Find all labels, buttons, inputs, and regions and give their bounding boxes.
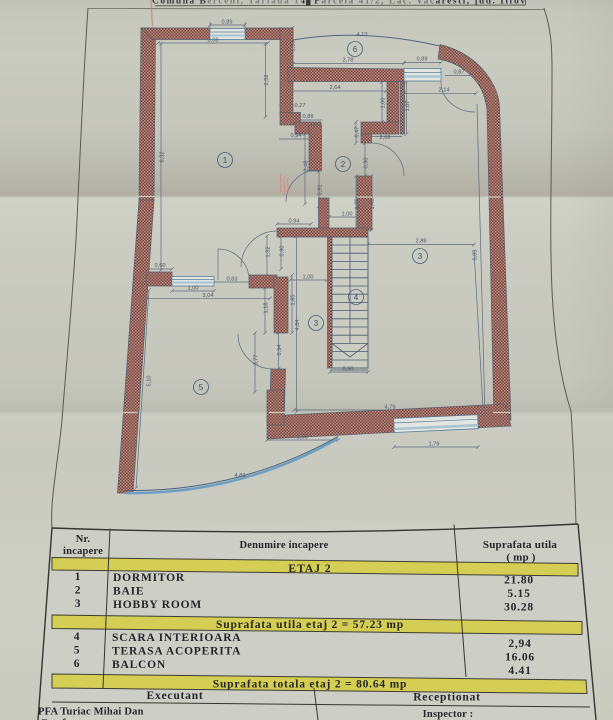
- svg-text:2,78: 2,78: [343, 58, 354, 64]
- svg-text:3,04: 3,04: [203, 293, 214, 299]
- svg-text:1,32: 1,32: [266, 247, 272, 258]
- svg-text:Receptionat: Receptionat: [413, 692, 481, 704]
- svg-text:6: 6: [353, 45, 358, 54]
- svg-text:2,69: 2,69: [380, 135, 391, 141]
- svg-text:1,00: 1,00: [188, 286, 199, 292]
- svg-text:Suprafata utila: Suprafata utila: [483, 539, 558, 551]
- svg-text:Denumire incapere: Denumire incapere: [239, 540, 328, 551]
- svg-text:2,88: 2,88: [416, 239, 427, 245]
- svg-text:0,94: 0,94: [289, 219, 300, 225]
- svg-text:5: 5: [199, 383, 204, 392]
- svg-text:Executant: Executant: [146, 690, 203, 702]
- svg-text:0,87: 0,87: [454, 70, 465, 76]
- svg-text:5.15: 5.15: [507, 588, 530, 600]
- svg-text:BALCON: BALCON: [112, 659, 166, 671]
- svg-text:SCARA INTERIOARA: SCARA INTERIOARA: [112, 632, 241, 644]
- svg-text:21.80: 21.80: [504, 575, 534, 587]
- svg-text:Suprafata utila etaj 2 = 57.23: Suprafata utila etaj 2 = 57.23 mp: [216, 619, 404, 631]
- svg-text:4: 4: [74, 631, 81, 643]
- svg-text:1: 1: [223, 156, 228, 165]
- svg-text:1,00: 1,00: [381, 98, 387, 109]
- svg-text:3,08: 3,08: [208, 38, 219, 44]
- svg-text:HOBBY ROOM: HOBBY ROOM: [113, 599, 202, 611]
- svg-text:0,94: 0,94: [277, 345, 283, 356]
- svg-text:6: 6: [74, 658, 81, 670]
- svg-text:1,18: 1,18: [264, 303, 270, 314]
- svg-text:BAIE: BAIE: [113, 586, 144, 598]
- svg-text:5,85: 5,85: [473, 250, 479, 261]
- svg-text:0,94: 0,94: [291, 133, 302, 139]
- svg-text:2: 2: [341, 160, 346, 169]
- svg-text:1,00: 1,00: [303, 275, 314, 281]
- svg-text:2,94: 2,94: [508, 638, 531, 650]
- svg-text:0,91: 0,91: [318, 185, 324, 196]
- svg-text:1,79: 1,79: [429, 442, 440, 448]
- svg-text:1,41: 1,41: [370, 199, 376, 210]
- svg-text:2,14: 2,14: [439, 87, 450, 93]
- svg-text:3,77: 3,77: [254, 355, 260, 366]
- svg-text:1,07: 1,07: [405, 101, 411, 112]
- svg-text:3: 3: [418, 252, 423, 261]
- svg-text:PFA Turiac Mihai Dan: PFA Turiac Mihai Dan: [38, 707, 144, 718]
- svg-text:0,89: 0,89: [222, 20, 233, 26]
- svg-text:0,60: 0,60: [155, 263, 166, 269]
- svg-text:0,83: 0,83: [227, 277, 238, 283]
- svg-text:DORMITOR: DORMITOR: [113, 572, 185, 584]
- svg-text:3: 3: [314, 319, 319, 328]
- svg-text:0,88: 0,88: [303, 114, 314, 120]
- svg-text:4,84: 4,84: [295, 320, 301, 331]
- svg-text:Nr.: Nr.: [76, 534, 91, 545]
- svg-text:Suprafata totala etaj 2 = 80.6: Suprafata totala etaj 2 = 80.64 mp: [213, 679, 407, 691]
- svg-text:0,90: 0,90: [343, 367, 354, 373]
- svg-text:TERASA ACOPERITA: TERASA ACOPERITA: [112, 646, 241, 658]
- svg-text:6,32: 6,32: [160, 152, 166, 163]
- svg-text:1,00: 1,00: [342, 212, 353, 218]
- svg-text:4.41: 4.41: [508, 665, 531, 677]
- svg-text:Inspector :: Inspector :: [423, 709, 474, 720]
- svg-text:4: 4: [354, 293, 359, 302]
- svg-text:0,27: 0,27: [295, 103, 306, 109]
- svg-text:ETAJ 2: ETAJ 2: [288, 563, 331, 575]
- svg-text:1,13: 1,13: [291, 41, 297, 52]
- svg-text:3: 3: [75, 598, 82, 610]
- svg-text:( mp ): ( mp ): [506, 552, 535, 564]
- svg-text:2: 2: [75, 585, 82, 597]
- svg-text:2,52: 2,52: [264, 75, 270, 86]
- svg-text:2,48: 2,48: [304, 161, 310, 172]
- svg-text:0,90: 0,90: [280, 246, 286, 257]
- svg-text:1: 1: [75, 571, 82, 583]
- svg-text:0,90: 0,90: [364, 158, 370, 169]
- svg-text:5,10: 5,10: [147, 376, 153, 387]
- svg-text:0,89: 0,89: [417, 57, 428, 63]
- svg-text:1,35: 1,35: [355, 199, 361, 210]
- svg-text:4,13: 4,13: [357, 32, 368, 38]
- svg-text:4,89: 4,89: [235, 473, 246, 479]
- svg-text:30.28: 30.28: [504, 602, 534, 614]
- svg-text:0,47: 0,47: [355, 127, 361, 138]
- svg-text:1,65: 1,65: [291, 295, 297, 306]
- svg-text:1,56: 1,56: [297, 435, 308, 441]
- svg-text:4,79: 4,79: [385, 405, 396, 411]
- svg-text:2,64: 2,64: [330, 85, 341, 91]
- svg-text:incapere: incapere: [63, 546, 103, 557]
- svg-text:5: 5: [74, 645, 81, 657]
- svg-text:16.06: 16.06: [505, 652, 535, 664]
